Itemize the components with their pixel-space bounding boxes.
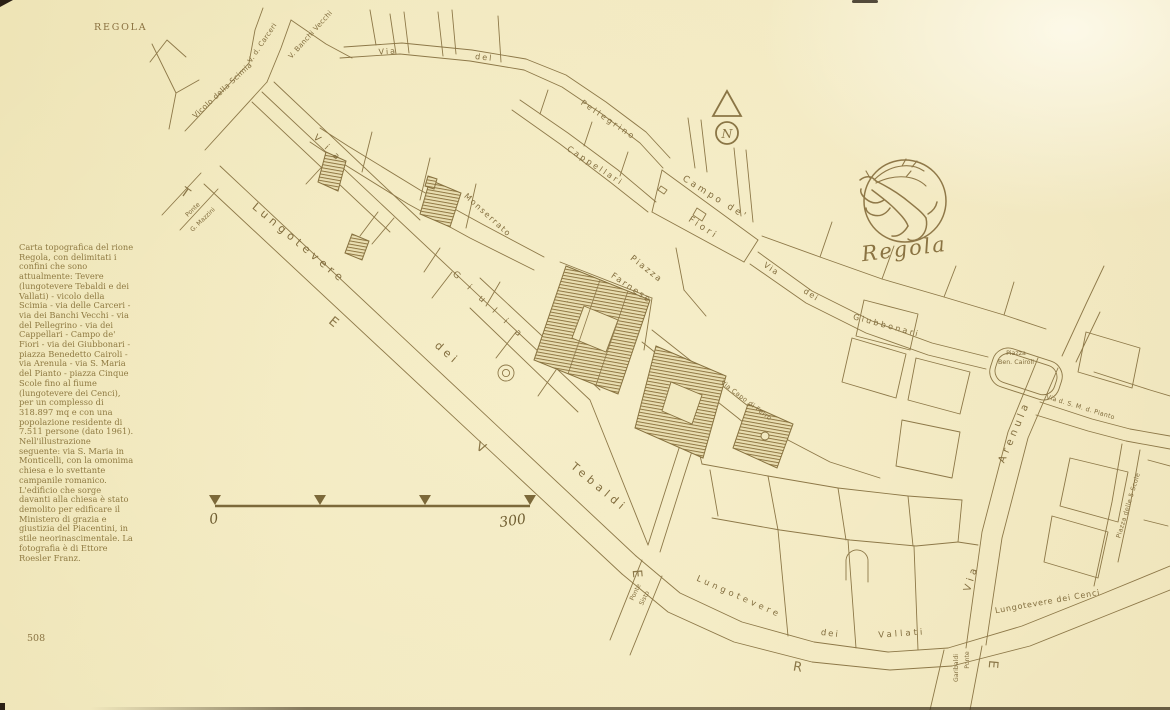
street-label: Monserrato	[462, 192, 513, 239]
street-label: Piazza	[1006, 350, 1026, 357]
street-label: Vicolo della Scimia	[191, 60, 254, 120]
river-letter: V	[473, 439, 488, 456]
scale-bar: 0 300	[208, 495, 536, 531]
scale-end-label: 300	[498, 511, 527, 531]
compass-triangle-icon	[713, 91, 741, 116]
building-small	[345, 234, 369, 260]
street-label: dei	[820, 628, 840, 640]
street-label: V. Banchi Vecchi	[287, 9, 334, 60]
street-label: Garibaldi	[953, 654, 960, 682]
stag-icon	[860, 159, 937, 241]
scan-artifact-dash	[852, 0, 878, 3]
street-label: Giubbonari	[852, 312, 921, 339]
street-label: del	[475, 52, 494, 63]
street-label: Sisto	[638, 590, 651, 607]
scan-artifact-corner-bottom	[0, 703, 5, 710]
map-label-layer: Vicolo della ScimiaV. d. CarceriV. Banch…	[177, 9, 1142, 682]
river-letter: T	[177, 184, 193, 201]
building-church-monserrato	[420, 180, 461, 227]
street-label: Ben. Cairoli	[998, 359, 1034, 366]
street-label: dei	[432, 339, 462, 368]
street-label: Vallati	[878, 627, 926, 640]
north-compass: N	[713, 91, 741, 144]
street-label: Tebaldi	[568, 459, 631, 515]
river-letter: R	[792, 659, 804, 675]
street-label: Ponte	[964, 651, 971, 669]
street-label: Arenula	[997, 399, 1033, 464]
street-label: Lungotevere	[695, 574, 783, 620]
street-label: Via	[962, 563, 981, 593]
scanned-book-page: REGOLA Carta topografica del rione Regol…	[0, 0, 1170, 710]
rione-emblem: Regola	[859, 159, 948, 266]
street-label: Piazza	[628, 254, 665, 286]
street-label: V. d. Carceri	[246, 22, 278, 65]
river-letter: E	[629, 569, 645, 578]
street-label: Cappellari	[565, 144, 625, 187]
fountain	[498, 365, 514, 381]
street-label: dei	[802, 287, 821, 304]
street-label: Via	[762, 260, 781, 277]
river-letter: E	[985, 660, 1001, 669]
street-label: Piazza delle 5 Scole	[1115, 472, 1142, 539]
compass-letter: N	[721, 126, 734, 141]
street-label: Via	[378, 46, 397, 56]
scale-start-label: 0	[208, 511, 219, 528]
regola-map: 0 300 N	[0, 0, 1170, 710]
street-label: Lungotevere dei Cenci	[994, 588, 1100, 615]
river-letter: E	[325, 314, 341, 331]
emblem-label: Regola	[859, 232, 948, 266]
street-label: Giulia	[450, 270, 533, 348]
